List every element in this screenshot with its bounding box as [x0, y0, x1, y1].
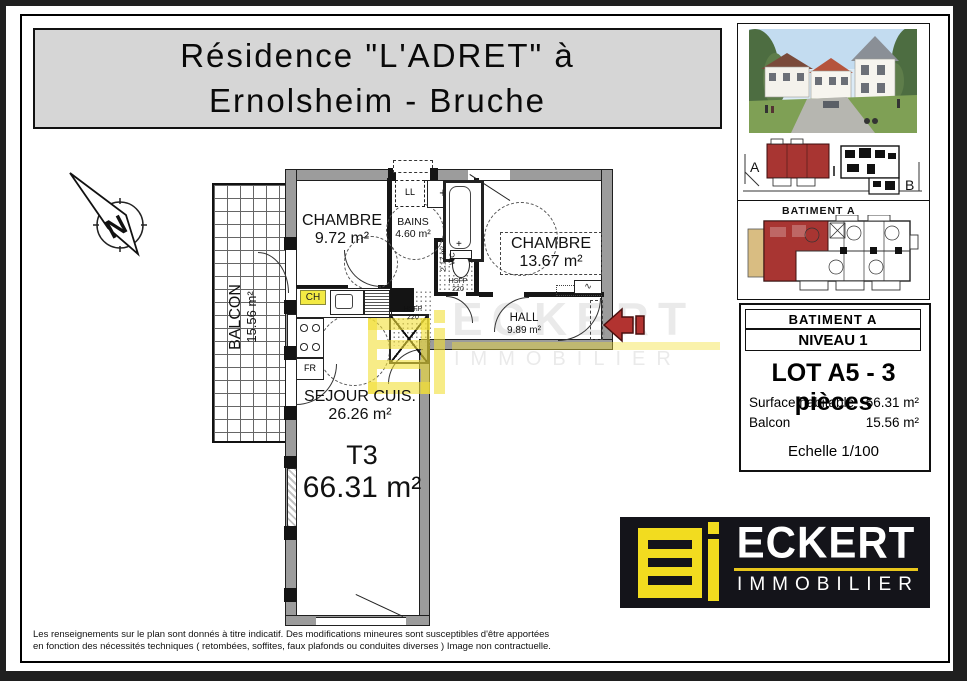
building-a-label: A — [750, 159, 760, 175]
hsfp-label: HSFP 220 — [440, 278, 476, 294]
bathtub-drain: + — [456, 239, 462, 250]
page-border-left — [0, 0, 6, 681]
building-b-label: B — [905, 177, 914, 193]
balcon-value: 15.56 m² — [866, 415, 919, 430]
logo-sub: IMMOBILIER — [733, 574, 923, 596]
room-label-chambre1: CHAMBRE 9.72 m² — [283, 212, 401, 249]
page-border-bottom — [0, 671, 967, 681]
plan-sheet: Résidence "L'ADRET" à Ernolsheim - Bruch… — [0, 0, 967, 681]
entrance-arrow-icon — [602, 304, 648, 346]
info-panel: BATIMENT A NIVEAU 1 LOT A5 - 3 pièces Su… — [739, 303, 931, 472]
info-echelle: Echelle 1/100 — [741, 443, 926, 460]
boiler-tag: CH — [300, 290, 326, 305]
room-label-sejour: SEJOUR CUIS. 26.26 m² — [292, 388, 428, 425]
cooktop — [296, 318, 324, 358]
title-line2: Ernolsheim - Bruche — [35, 79, 720, 124]
info-balcon-row: Balcon 15.56 m² — [749, 415, 919, 430]
title-line1: Résidence "L'ADRET" à — [35, 34, 720, 79]
bains-window-box — [393, 160, 433, 173]
lot-summary: T3 66.31 m² — [294, 440, 430, 506]
north-compass: N — [58, 168, 168, 263]
watermark-text: IMMOBILIER — [454, 348, 744, 371]
drainer — [364, 290, 390, 315]
wall-pier — [284, 526, 297, 540]
info-surface-row: Surface habitable 66.31 m² — [749, 395, 919, 410]
room-label-wc: 2.17 m² WC — [439, 239, 456, 279]
logo-e-stripe — [648, 540, 692, 549]
site-plan: A B — [741, 134, 925, 198]
balcon-label: Balcon — [749, 415, 790, 430]
residence-photo — [749, 29, 917, 133]
info-niveau: NIVEAU 1 — [745, 329, 921, 351]
batiment-panel: BATIMENT A — [737, 200, 930, 300]
room-label-hall: HALL 9.89 m² — [490, 312, 558, 337]
kitchen-sink — [330, 290, 364, 315]
balcony-label: BALCON 15.56 m² — [227, 232, 267, 402]
watermark-mark — [377, 360, 421, 369]
logo-e-stripe — [648, 576, 692, 585]
logo-e-stripe — [648, 558, 692, 567]
washing-machine: LL — [395, 180, 425, 207]
logo-e-mark — [638, 528, 702, 598]
title-box: Résidence "L'ADRET" à Ernolsheim - Bruch… — [33, 28, 722, 129]
logo-brand: ECKERT — [733, 518, 919, 568]
sejour-french-window — [316, 617, 406, 626]
batiment-a-plan — [740, 215, 926, 297]
watermark-mark — [434, 328, 445, 394]
sink-basin — [335, 294, 353, 309]
disclaimer: Les renseignements sur le plan sont donn… — [33, 629, 653, 654]
page-border-top — [0, 0, 967, 6]
disclaimer-line2: en fonction des nécessités techniques ( … — [33, 641, 653, 653]
page-border-right — [953, 0, 967, 681]
surface-value: 66.31 m² — [866, 395, 919, 410]
hsfp-label: HSFP 220 — [394, 306, 432, 322]
site-panel: A B — [737, 23, 930, 202]
surface-label: Surface habitable — [749, 395, 854, 410]
wall-pier — [284, 588, 297, 602]
logo-i-dot — [708, 522, 719, 534]
watermark-mark — [434, 310, 445, 323]
disclaimer-line1: Les renseignements sur le plan sont donn… — [33, 629, 653, 641]
wall-top — [286, 170, 612, 180]
room-label-bains: BAINS 4.60 m² — [385, 216, 441, 240]
logo-i-stem — [708, 539, 719, 601]
mini-balcony — [748, 229, 764, 277]
info-batiment: BATIMENT A — [745, 309, 921, 329]
eckert-logo: ECKERT IMMOBILIER — [620, 517, 930, 608]
logo-rule — [734, 568, 918, 571]
fridge: FR — [296, 358, 324, 380]
room-label-chambre2: CHAMBRE 13.67 m² — [500, 232, 602, 275]
building-a-footprint — [767, 144, 829, 178]
watermark-mark — [377, 340, 421, 349]
